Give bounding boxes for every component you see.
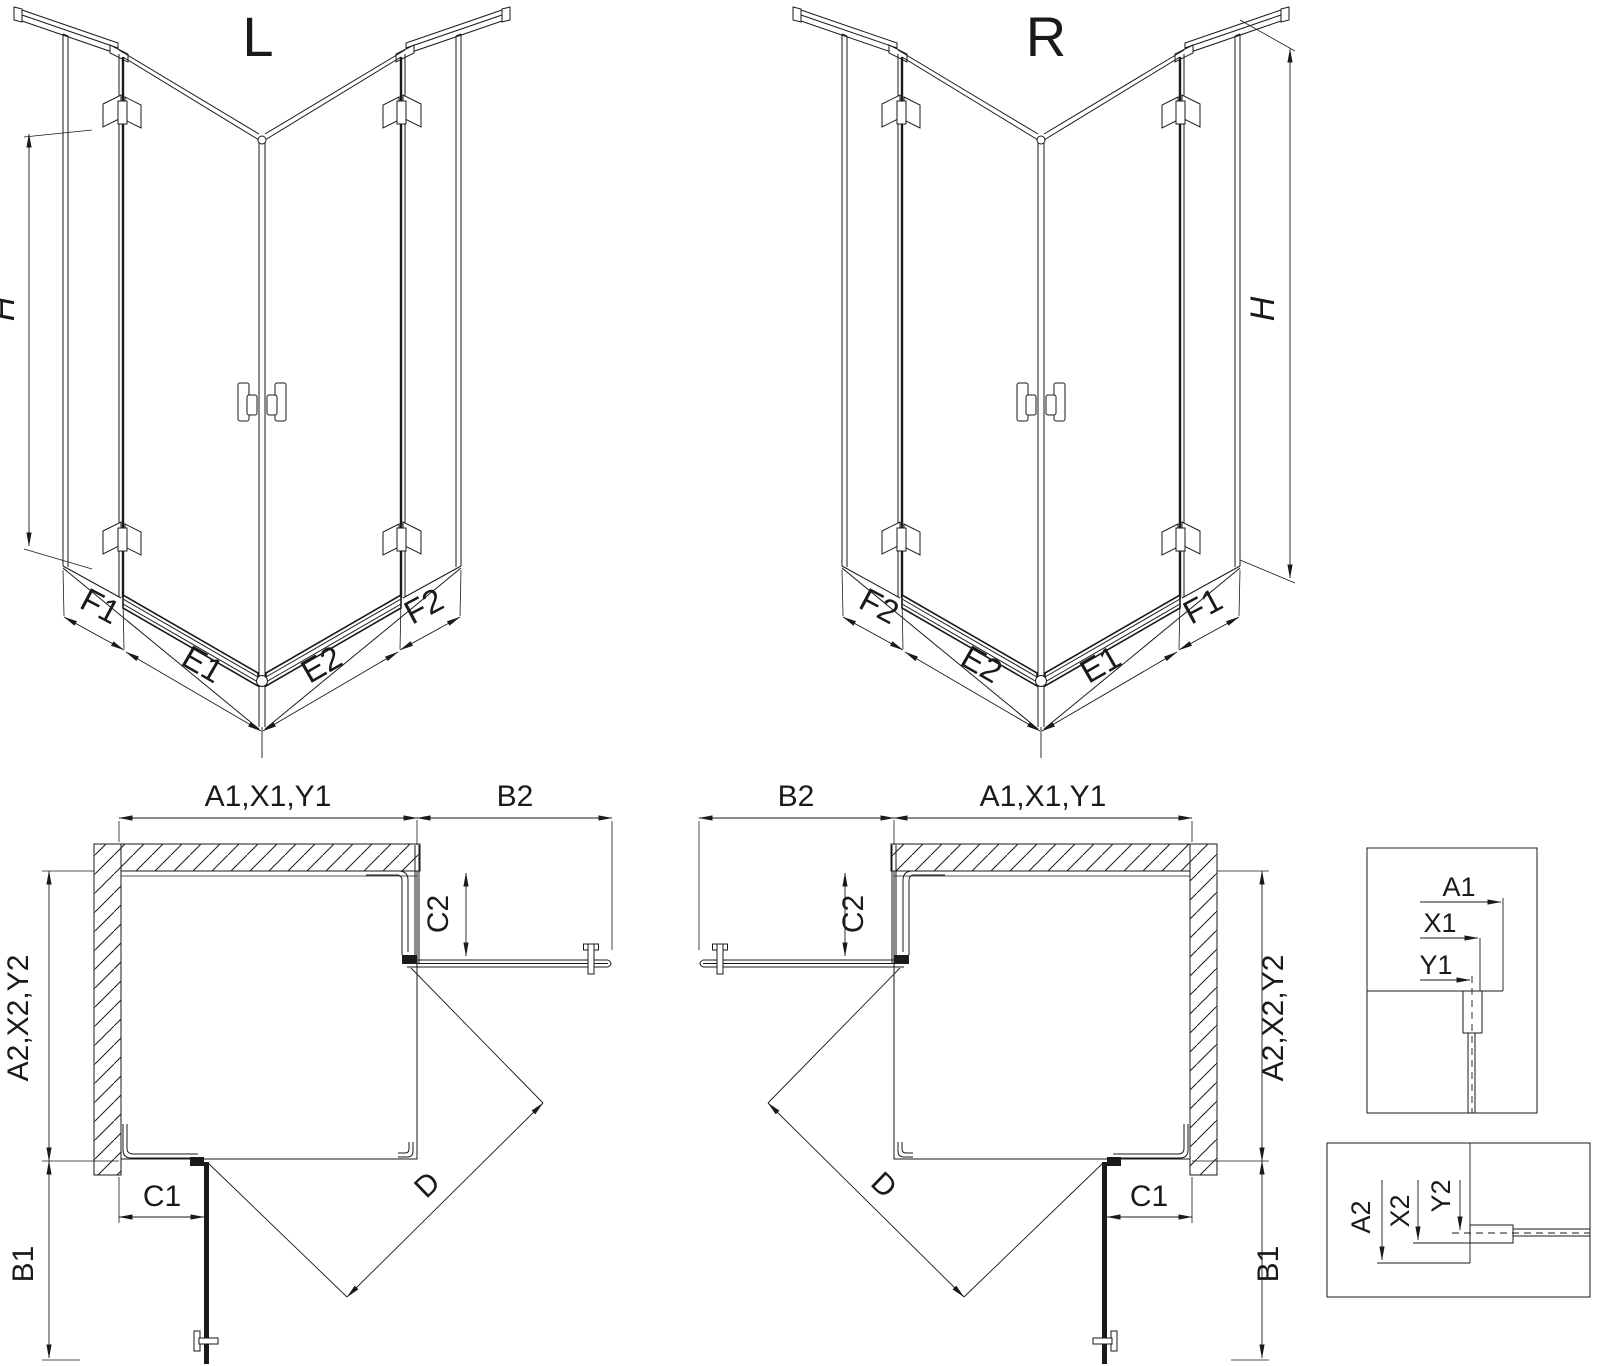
dim-label-f2-right: F2 — [854, 580, 905, 631]
iso-left-geometry — [14, 7, 510, 758]
drawing-svg: L H F1 E1 E2 F2 R H F2 E2 E1 F1 A1,X1,Y1… — [0, 0, 1600, 1366]
iso-left-title: L — [242, 5, 273, 68]
dim-label-e1-right: E1 — [1074, 638, 1127, 690]
plan-left-dim-a1x1y1: A1,X1,Y1 — [205, 780, 332, 813]
plan-right-dim-d: D — [864, 1166, 903, 1205]
detail-dim-y1: Y1 — [1419, 950, 1452, 980]
plan-left-dim-a2x2y2: A2,X2,Y2 — [2, 955, 35, 1082]
plan-right-geometry — [699, 818, 1269, 1364]
dim-label-e2-right: E2 — [955, 638, 1008, 690]
wall-section-right — [1190, 844, 1217, 1175]
iso-view-right: R H F2 E2 E1 F1 — [793, 5, 1295, 758]
dim-label-f1-left: F1 — [75, 580, 126, 631]
plan-right-dim-b2: B2 — [778, 780, 815, 813]
detail-dim-y2: Y2 — [1426, 1179, 1456, 1212]
plan-left-dim-d: D — [408, 1166, 447, 1205]
plan-right-dim-c1: C1 — [1130, 1180, 1168, 1213]
iso-right-title: R — [1026, 5, 1066, 68]
plan-left-dim-c1: C1 — [143, 1180, 181, 1213]
dim-label-e1-left: E1 — [176, 638, 229, 690]
plan-right-dim-a2x2y2: A2,X2,Y2 — [1257, 955, 1290, 1082]
wall-section-left — [94, 844, 121, 1175]
plan-left-dim-c2: C2 — [422, 895, 455, 933]
dim-label-f1-right: F1 — [1177, 580, 1228, 631]
detail-dim-x1: X1 — [1423, 908, 1456, 938]
detail-dim-a1: A1 — [1442, 872, 1475, 902]
wall-section-top — [121, 844, 420, 871]
plan-right-dim-c2: C2 — [837, 895, 870, 933]
dim-label-height-left: H — [0, 296, 22, 321]
detail-dim-x2: X2 — [1385, 1194, 1415, 1227]
plan-view-left: A1,X1,Y1 B2 C2 A2,X2,Y2 C1 B1 D — [2, 780, 612, 1364]
dim-label-e2-left: E2 — [295, 638, 348, 690]
iso-left-height-dimension — [24, 130, 92, 569]
plan-right-dim-b1: B1 — [1252, 1246, 1285, 1283]
iso-right-geometry — [793, 7, 1289, 758]
detail-box-a1: A1 X1 Y1 — [1367, 848, 1537, 1113]
shower-enclosure-technical-drawing: L H F1 E1 E2 F2 R H F2 E2 E1 F1 A1,X1,Y1… — [0, 0, 1600, 1366]
plan-left-geometry — [42, 818, 612, 1364]
plan-left-dim-b1: B1 — [7, 1246, 40, 1283]
wall-section-top-2 — [891, 844, 1190, 871]
dim-label-height-right: H — [1244, 296, 1282, 321]
plan-left-dim-b2: B2 — [497, 780, 534, 813]
plan-view-right: B2 A1,X1,Y1 C2 A2,X2,Y2 C1 B1 D — [699, 780, 1290, 1364]
iso-view-left: L H F1 E1 E2 F2 — [0, 5, 510, 758]
plan-right-dim-a1x1y1: A1,X1,Y1 — [980, 780, 1107, 813]
dim-label-f2-left: F2 — [398, 580, 449, 631]
detail-box-a2: A2 X2 Y2 — [1327, 1143, 1590, 1297]
detail-dim-a2: A2 — [1346, 1200, 1376, 1233]
